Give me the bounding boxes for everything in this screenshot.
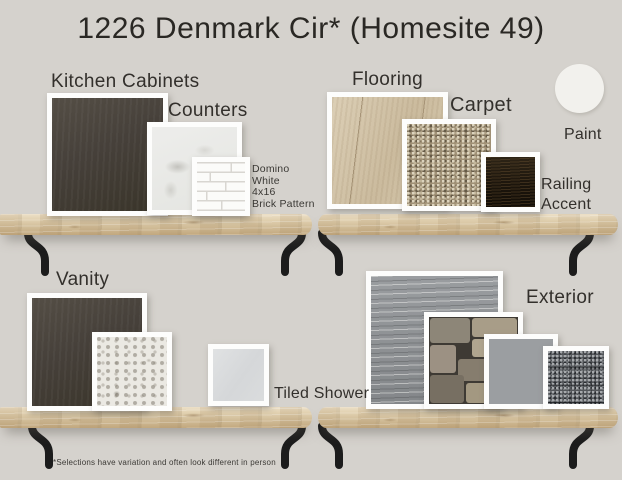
- tiled-shower-label: Tiled Shower: [274, 385, 369, 403]
- shelf-bracket: [18, 230, 58, 278]
- shelf-bracket: [560, 230, 600, 278]
- brick-note-line: 4x16: [252, 187, 324, 199]
- vanity-counter-sample: [97, 337, 167, 406]
- brick-note-line: Brick Pattern: [252, 199, 324, 211]
- brick-note: Domino White 4x16 Brick Pattern: [252, 164, 324, 210]
- vanity-label: Vanity: [56, 269, 109, 291]
- counters-label: Counters: [168, 100, 248, 122]
- page-title: 1226 Denmark Cir* (Homesite 49): [0, 12, 622, 46]
- exterior-shingle-sample: [548, 351, 604, 404]
- brick-tile-swatch: [192, 157, 250, 216]
- paint-label: Paint: [564, 126, 601, 144]
- brick-pattern-sample: [197, 162, 245, 211]
- shelf-bracket: [312, 423, 352, 471]
- vanity-counter-swatch: [92, 332, 172, 411]
- exterior-shingle-swatch: [543, 346, 609, 409]
- disclaimer-text: *Selections have variation and often loo…: [53, 458, 276, 467]
- carpet-sample: [407, 124, 491, 206]
- shelf-bracket: [272, 423, 312, 471]
- shelf-bracket: [272, 230, 312, 278]
- railing-accent-label: Railing Accent: [541, 175, 605, 215]
- shelf-bracket: [560, 423, 600, 471]
- kitchen-cabinets-label: Kitchen Cabinets: [51, 71, 199, 93]
- carpet-label: Carpet: [450, 94, 512, 117]
- tiled-shower-sample: [213, 349, 264, 401]
- tiled-shower-swatch: [208, 344, 269, 406]
- shelf-board-bottom-right: [318, 407, 618, 428]
- paint-color-dot: [555, 64, 604, 113]
- design-board: 1226 Denmark Cir* (Homesite 49) Kitchen …: [0, 0, 622, 480]
- brick-note-line: Domino: [252, 164, 324, 176]
- railing-accent-sample: [486, 157, 535, 207]
- shelf-board-top-right: [318, 214, 618, 235]
- shelf-bracket: [312, 230, 352, 278]
- exterior-label: Exterior: [526, 287, 594, 309]
- shelf-board-top-left: [0, 214, 312, 235]
- flooring-label: Flooring: [352, 69, 423, 91]
- railing-accent-swatch: [481, 152, 540, 212]
